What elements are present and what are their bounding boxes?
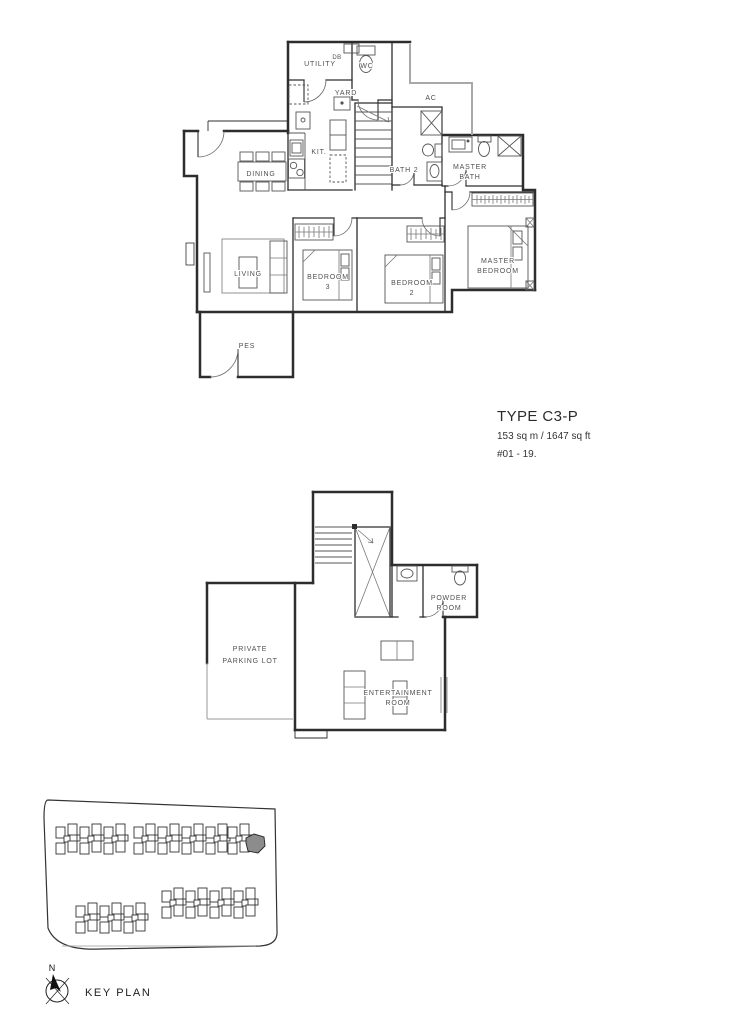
lower-floor-plan: PRIVATE PARKING LOT POWDER ROOM ENTERTAI… bbox=[207, 492, 477, 738]
key-plan-label: KEY PLAN bbox=[85, 987, 151, 999]
parking-open-edge bbox=[207, 663, 293, 719]
label-private-parking-1: PRIVATE bbox=[233, 646, 268, 653]
label-bedroom3-2: 3 bbox=[326, 284, 331, 291]
label-kitchen: KIT. bbox=[311, 149, 326, 156]
upper-exterior-walls bbox=[184, 42, 535, 377]
north-compass-icon: N bbox=[46, 963, 69, 1004]
sofa bbox=[270, 241, 287, 293]
powder-toilet bbox=[452, 566, 468, 585]
ac-ledge-edge bbox=[410, 44, 472, 135]
unit-type-title: TYPE C3-P bbox=[497, 408, 578, 425]
master-wardrobe bbox=[472, 193, 533, 206]
washing-machine bbox=[289, 85, 308, 104]
upper-floor-plan: UTILITY DB WC YARD AC KIT. DINING LIVING… bbox=[184, 42, 535, 377]
label-bedroom2-1: BEDROOM bbox=[391, 280, 433, 287]
sofa bbox=[344, 671, 365, 719]
bath2-fixtures bbox=[421, 111, 442, 181]
label-powder-2: ROOM bbox=[437, 605, 462, 612]
lower-exterior-walls bbox=[207, 492, 477, 738]
label-ac: AC bbox=[425, 95, 436, 102]
lower-labels: PRIVATE PARKING LOT POWDER ROOM ENTERTAI… bbox=[222, 595, 467, 707]
label-dining: DINING bbox=[246, 171, 275, 178]
highlighted-unit bbox=[246, 834, 265, 853]
label-bedroom3-1: BEDROOM bbox=[307, 274, 349, 281]
label-private-parking-2: PARKING LOT bbox=[222, 658, 277, 665]
label-db: DB bbox=[332, 55, 341, 61]
living-furniture bbox=[204, 239, 287, 293]
upper-staircase bbox=[355, 106, 392, 184]
carpet bbox=[222, 239, 284, 293]
living-window bbox=[186, 243, 194, 265]
floor-plan-page: UTILITY DB WC YARD AC KIT. DINING LIVING… bbox=[0, 0, 739, 1034]
label-yard: YARD bbox=[335, 90, 357, 97]
unit-levels: #01 - 19. bbox=[497, 449, 536, 460]
label-master-bath-1: MASTER bbox=[453, 164, 487, 171]
lower-interior-walls bbox=[355, 527, 426, 617]
master-bed bbox=[468, 218, 534, 290]
label-master-bedroom-2: BEDROOM bbox=[477, 268, 519, 275]
refrigerator bbox=[330, 155, 346, 182]
north-label: N bbox=[49, 963, 56, 973]
label-bedroom2-2: 2 bbox=[410, 290, 415, 297]
upper-labels: UTILITY DB WC YARD AC KIT. DINING LIVING… bbox=[234, 55, 519, 350]
building-clusters bbox=[56, 824, 258, 933]
label-living: LIVING bbox=[234, 271, 262, 278]
label-utility: UTILITY bbox=[304, 61, 336, 68]
tv-console bbox=[204, 253, 210, 292]
label-master-bedroom-1: MASTER bbox=[481, 258, 515, 265]
label-bath2: BATH 2 bbox=[390, 167, 419, 174]
label-wc: WC bbox=[360, 63, 373, 70]
yard-sink bbox=[334, 97, 350, 110]
entertainment-furniture bbox=[344, 641, 447, 719]
unit-info: TYPE C3-P 153 sq m / 1647 sq ft #01 - 19… bbox=[497, 408, 591, 460]
label-master-bath-2: BATH bbox=[459, 174, 480, 181]
label-entertainment-2: ROOM bbox=[386, 700, 411, 707]
hall-basin bbox=[397, 566, 417, 581]
bedroom3-furniture bbox=[295, 224, 352, 300]
label-entertainment-1: ENTERTAINMENT bbox=[363, 690, 432, 697]
label-pes: PES bbox=[239, 343, 255, 350]
laundry-basin bbox=[296, 112, 310, 129]
bedroom2-furniture bbox=[385, 226, 444, 303]
lower-staircase bbox=[315, 524, 373, 563]
key-plan: N KEY PLAN bbox=[44, 800, 277, 1004]
floor-plan-canvas: UTILITY DB WC YARD AC KIT. DINING LIVING… bbox=[0, 0, 739, 1034]
master-bath-fixtures bbox=[449, 136, 521, 157]
console bbox=[393, 681, 407, 714]
unit-area: 153 sq m / 1647 sq ft bbox=[497, 431, 591, 442]
upper-doors bbox=[198, 80, 470, 377]
label-powder-1: POWDER bbox=[431, 595, 467, 602]
